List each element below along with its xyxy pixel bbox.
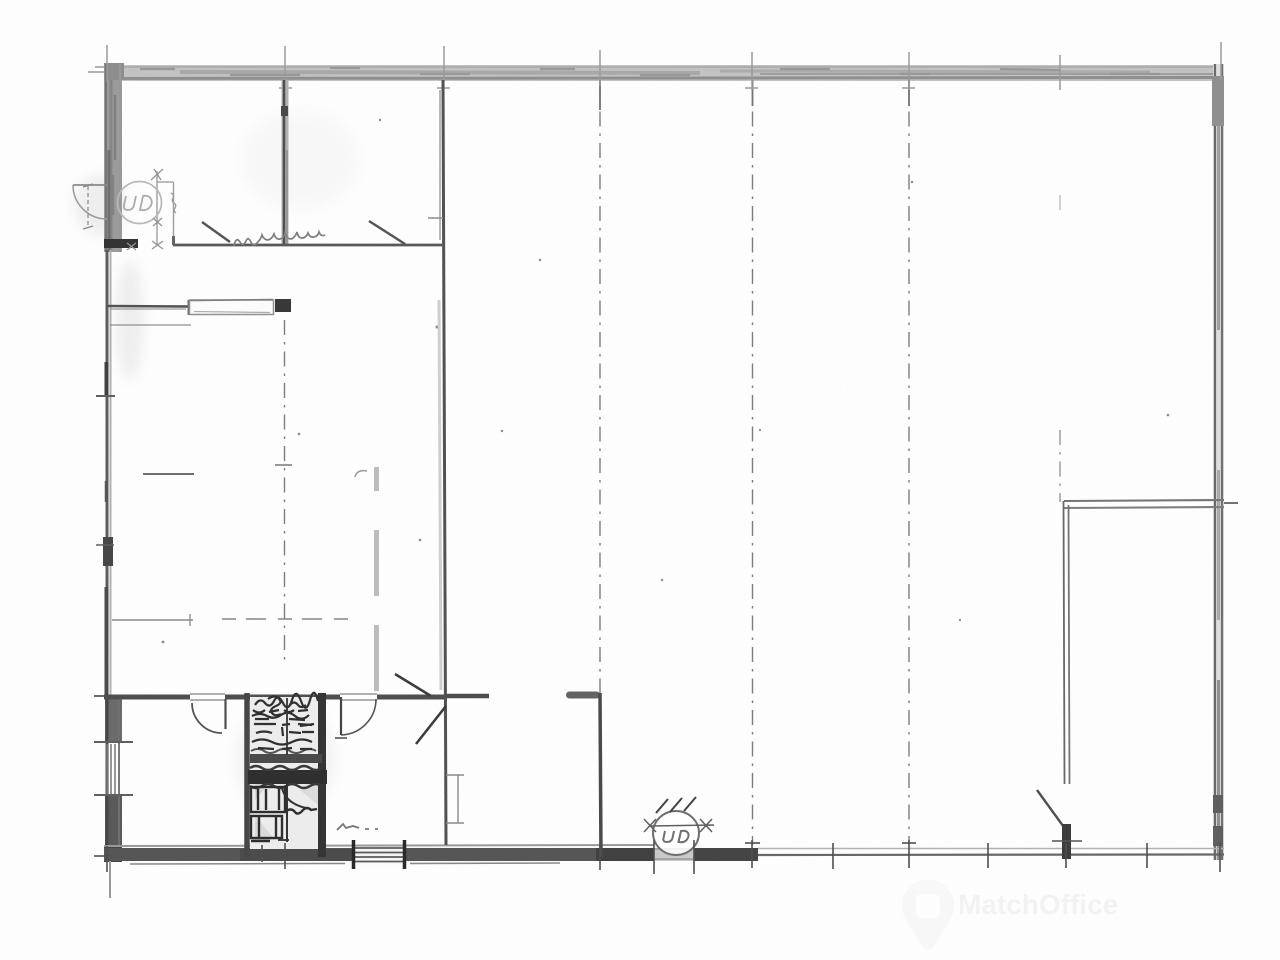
svg-text:MatchOffice: MatchOffice: [958, 889, 1118, 920]
